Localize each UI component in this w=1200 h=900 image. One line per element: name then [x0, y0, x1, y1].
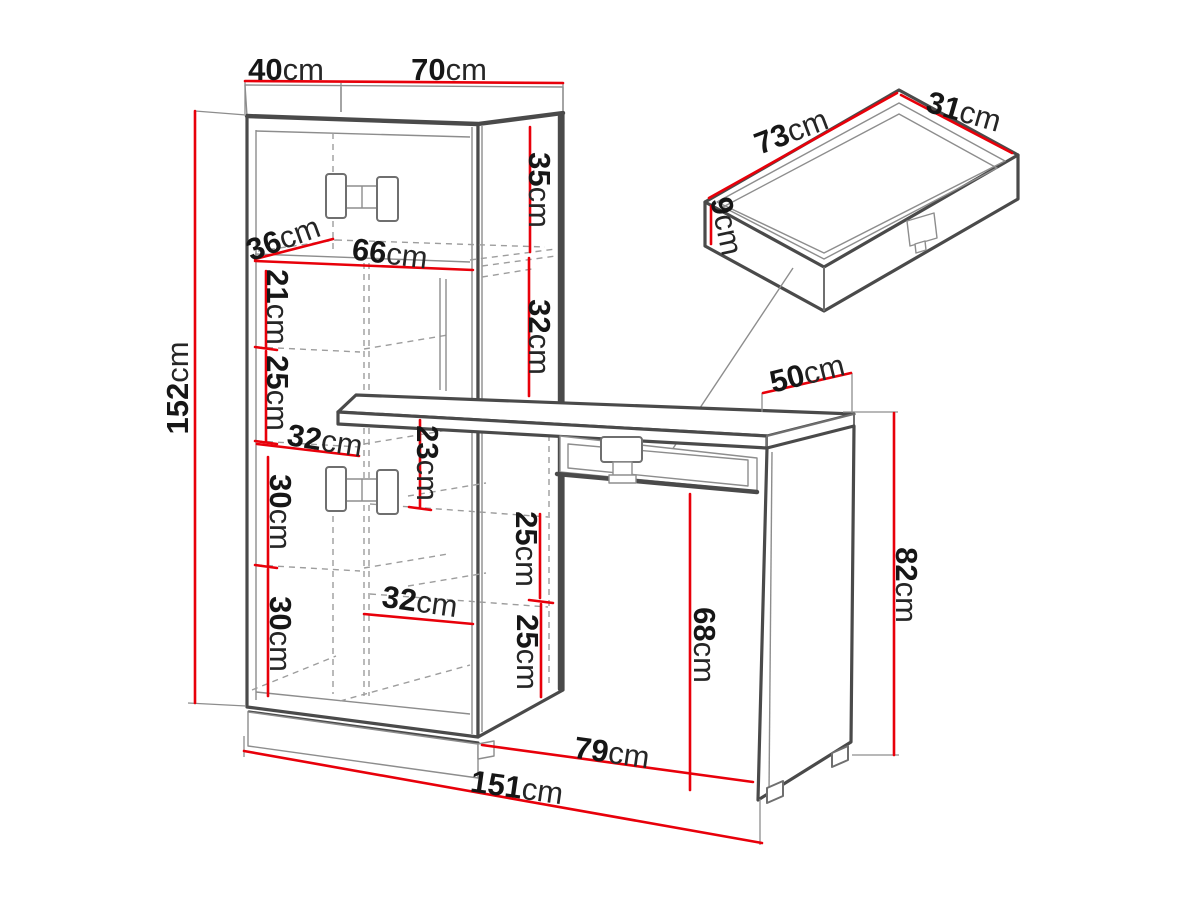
diagram-canvas: 40cm 70cm 152cm 35cm 36cm 66cm 21cm 25cm… [0, 0, 1200, 900]
dim-label-desk-depth: 50cm [766, 347, 848, 399]
dim-label-door-lower: 30cm [264, 596, 299, 672]
drawer-detail [668, 90, 1018, 456]
dim-label-top-width: 70cm [411, 52, 487, 87]
dim-label-under-desk-gap: 23cm [411, 425, 446, 501]
cabinet-foot [478, 741, 494, 759]
dim-label-door-upper: 30cm [264, 474, 299, 550]
dim-label-total-width: 151cm [468, 763, 565, 811]
dim-label-desk-width: 79cm [572, 729, 652, 774]
dim-label-cube-a: 25cm [510, 511, 545, 587]
dim-label-side-niche: 32cm [523, 299, 558, 375]
drawer-handle-tab [915, 241, 926, 253]
dim-label-cube-b: 25cm [511, 614, 546, 690]
furniture-dimension-diagram: 40cm 70cm 152cm 35cm 36cm 66cm 21cm 25cm… [0, 0, 1200, 900]
dim-label-desk-height: 82cm [890, 547, 925, 623]
dim-label-kneehole: 68cm [688, 607, 723, 683]
dim-label-top-section: 35cm [523, 152, 558, 228]
dim-label-top-depth: 40cm [248, 52, 324, 87]
dim-label-total-height: 152cm [160, 341, 195, 434]
dim-label-niche-a: 21cm [261, 269, 296, 345]
